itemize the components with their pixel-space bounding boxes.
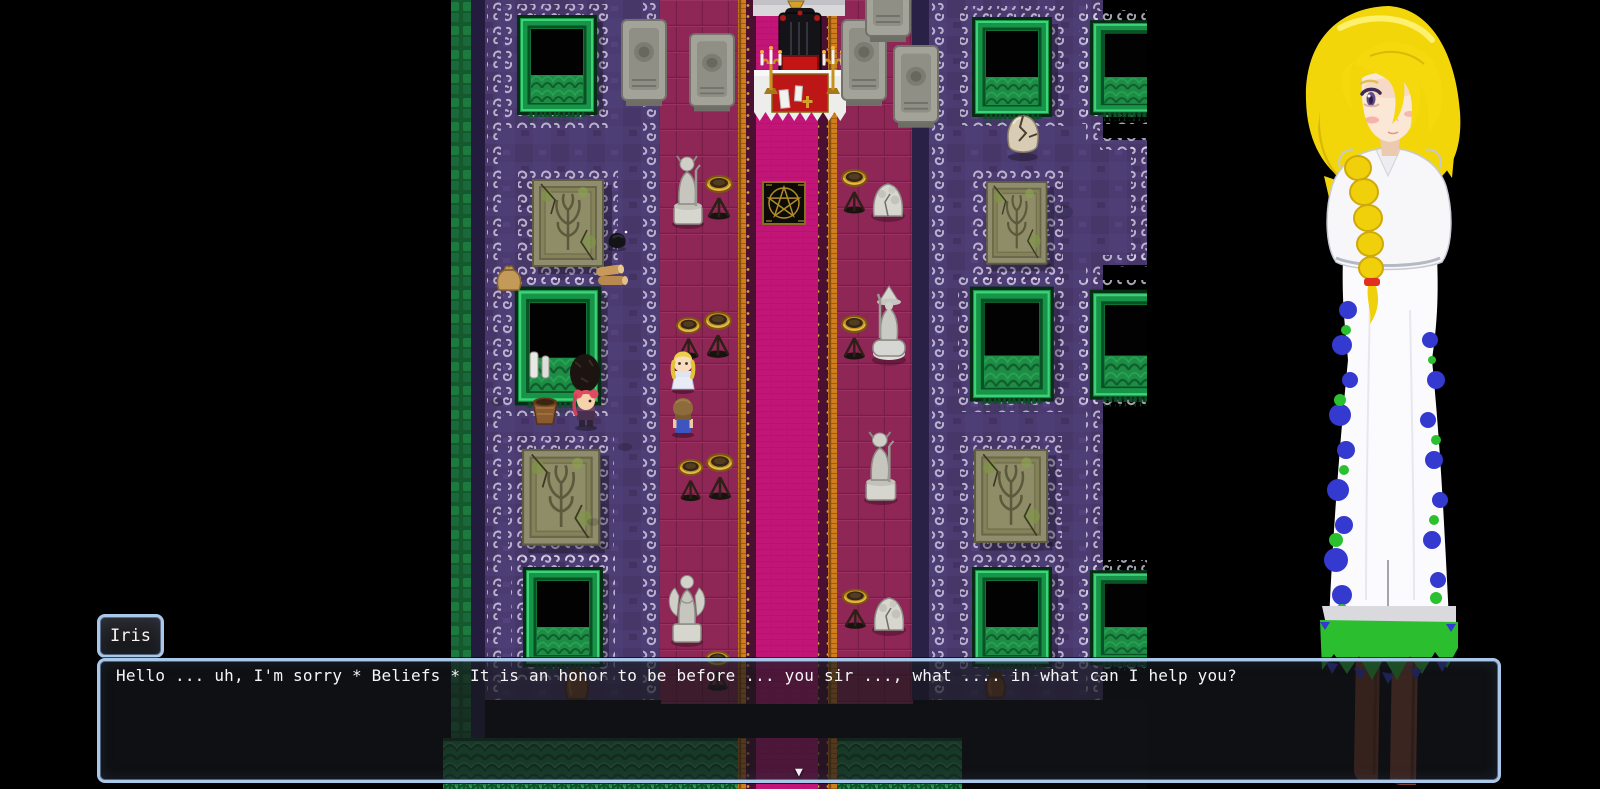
continue-indicator-icon: ▼ [795,766,803,779]
message-window[interactable]: Hello ... uh, I'm sorry * Beliefs * It i… [97,658,1501,783]
npc-iris [672,352,694,395]
portrait-dress [1320,238,1458,684]
right-hall-features [958,6,1147,676]
bucket [533,398,557,425]
speaker-name-box: Iris [97,614,164,658]
cracked-orb [1008,116,1038,161]
braid-tie [1364,278,1380,286]
npc-brown-hair [672,398,694,438]
message-text: Hello ... uh, I'm sorry * Beliefs * It i… [116,664,1482,688]
game-screen[interactable]: Iris Hello ... uh, I'm sorry * Beliefs *… [0,0,1600,789]
speaker-name: Iris [110,626,151,646]
pentagram-rug [763,182,805,224]
left-wall-strip [451,0,471,738]
